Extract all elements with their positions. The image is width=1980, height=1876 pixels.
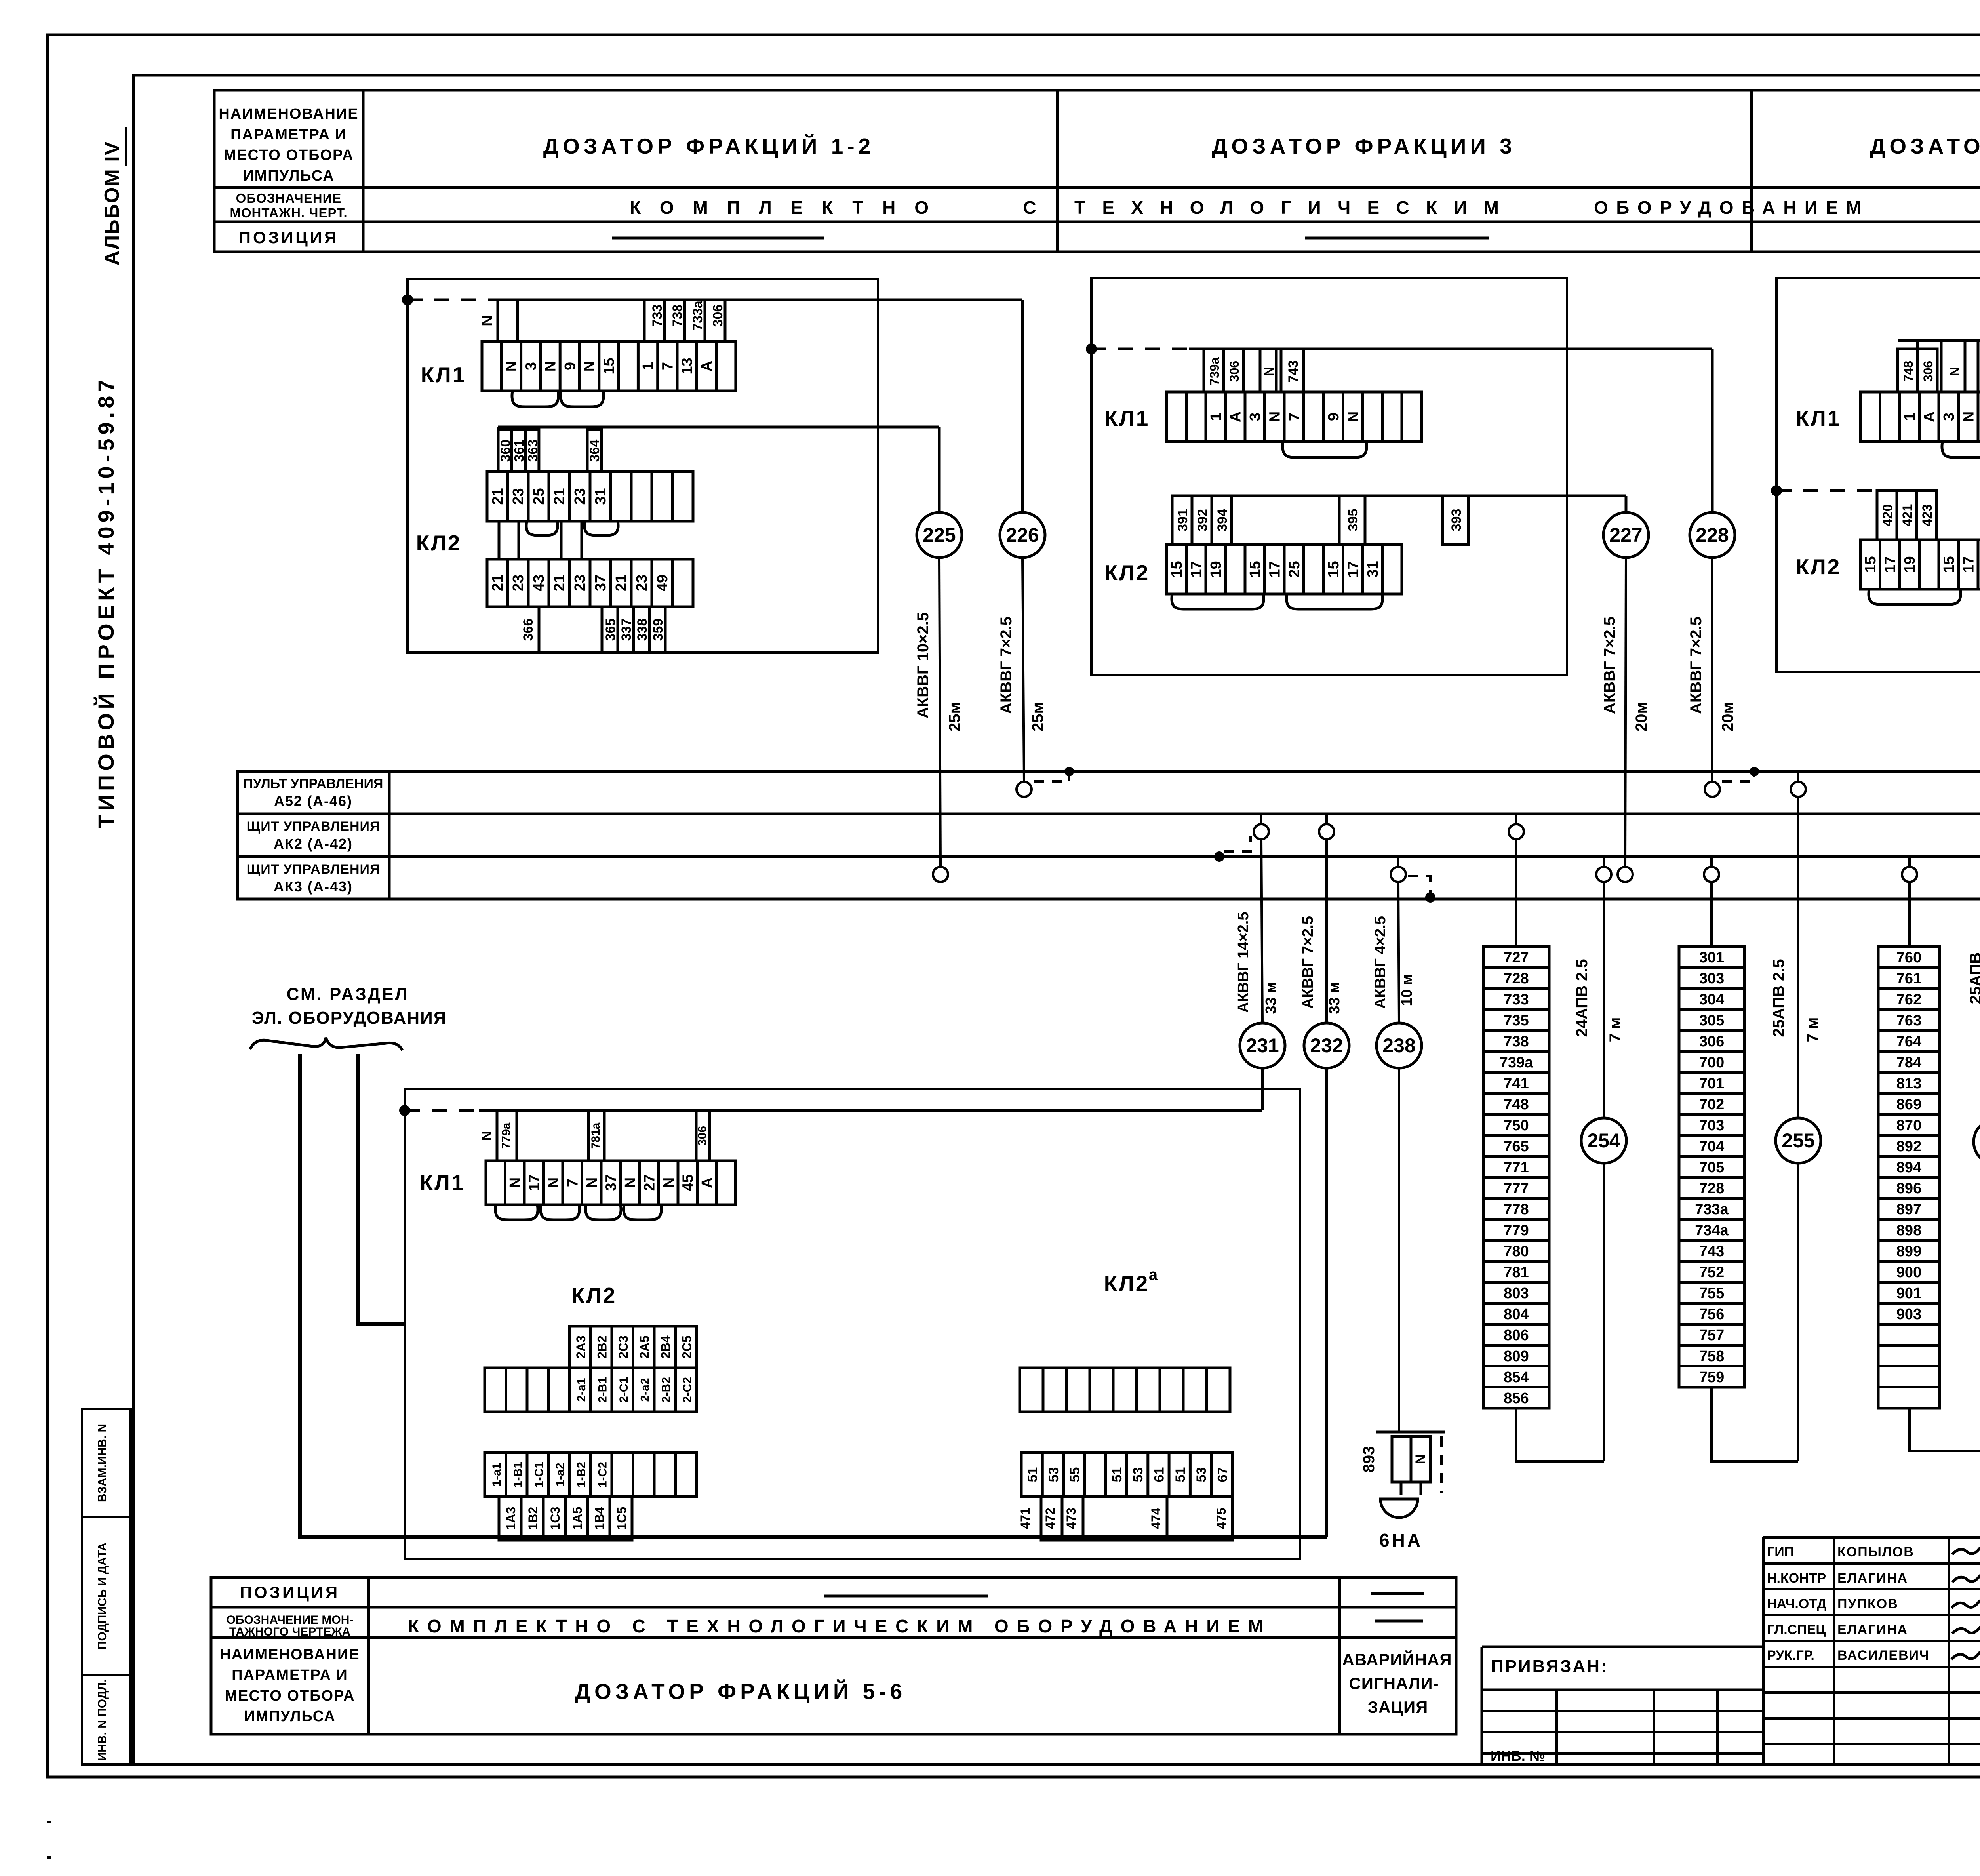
svg-text:727: 727 <box>1504 949 1529 966</box>
svg-text:ИНВ. N ПОДЛ.: ИНВ. N ПОДЛ. <box>96 1679 109 1761</box>
svg-text:306: 306 <box>710 305 725 327</box>
svg-text:ПРИВЯЗАН:: ПРИВЯЗАН: <box>1491 1657 1609 1676</box>
svg-text:893: 893 <box>1360 1446 1378 1473</box>
svg-text:15: 15 <box>601 358 617 374</box>
svg-text:15: 15 <box>1941 556 1957 573</box>
svg-text:ДОЗАТОР ФРАКЦИИ 3: ДОЗАТОР ФРАКЦИИ 3 <box>1212 134 1516 158</box>
svg-text:21: 21 <box>613 575 630 591</box>
svg-text:N: N <box>1948 367 1963 377</box>
svg-text:728: 728 <box>1504 970 1529 987</box>
svg-text:МОНТАЖН. ЧЕРТ.: МОНТАЖН. ЧЕРТ. <box>230 206 347 220</box>
svg-text:КЛ2: КЛ2 <box>571 1283 617 1308</box>
svg-text:N: N <box>545 1177 562 1188</box>
svg-text:392: 392 <box>1195 509 1210 531</box>
svg-text:771: 771 <box>1504 1159 1529 1176</box>
svg-text:23: 23 <box>510 488 527 505</box>
svg-text:2-В2: 2-В2 <box>660 1377 673 1403</box>
svg-text:ГЛ.СПЕЦ: ГЛ.СПЕЦ <box>1767 1622 1826 1637</box>
svg-text:20м: 20м <box>1633 702 1650 731</box>
svg-text:АКВВГ 10×2.5: АКВВГ 10×2.5 <box>914 612 932 718</box>
svg-text:ПОДПИСЬ И ДАТА: ПОДПИСЬ И ДАТА <box>96 1543 109 1649</box>
svg-text:1-С1: 1-С1 <box>533 1462 546 1487</box>
svg-text:С: С <box>1023 197 1036 218</box>
svg-text:51: 51 <box>1173 1467 1188 1482</box>
svg-text:53: 53 <box>1131 1467 1146 1482</box>
svg-text:23: 23 <box>572 488 588 505</box>
svg-text:15: 15 <box>1247 561 1264 577</box>
svg-text:779: 779 <box>1504 1222 1529 1239</box>
svg-text:2-В1: 2-В1 <box>596 1377 609 1403</box>
svg-text:СИГНАЛИ-: СИГНАЛИ- <box>1349 1674 1439 1693</box>
svg-text:781: 781 <box>1504 1264 1529 1281</box>
svg-text:813: 813 <box>1896 1075 1921 1092</box>
svg-text:17: 17 <box>1960 556 1977 573</box>
svg-text:23: 23 <box>510 575 527 591</box>
svg-text:2-а1: 2-а1 <box>575 1378 588 1402</box>
svg-text:701: 701 <box>1699 1075 1724 1092</box>
svg-text:N: N <box>503 361 520 371</box>
svg-text:КОПЫЛОВ: КОПЫЛОВ <box>1837 1545 1914 1560</box>
svg-text:Н.КОНТР: Н.КОНТР <box>1767 1571 1826 1586</box>
svg-text:733: 733 <box>650 305 665 327</box>
svg-text:АКВВГ 7×2.5: АКВВГ 7×2.5 <box>1601 617 1618 714</box>
svg-text:25АПВ 2.5: 25АПВ 2.5 <box>1770 959 1788 1037</box>
svg-text:21: 21 <box>489 488 506 505</box>
svg-text:1-В1: 1-В1 <box>511 1462 524 1487</box>
svg-text:НАИМЕНОВАНИЕ: НАИМЕНОВАНИЕ <box>220 1646 360 1663</box>
svg-text:2А3: 2А3 <box>574 1335 588 1359</box>
svg-text:24АПВ 2.5: 24АПВ 2.5 <box>1573 959 1591 1037</box>
svg-text:894: 894 <box>1896 1159 1921 1176</box>
svg-text:N: N <box>1266 411 1283 422</box>
svg-text:2-а2: 2-а2 <box>638 1378 651 1402</box>
svg-text:757: 757 <box>1699 1327 1724 1344</box>
svg-text:226: 226 <box>1006 524 1039 546</box>
svg-text:ЭЛ. ОБОРУДОВАНИЯ: ЭЛ. ОБОРУДОВАНИЯ <box>252 1008 447 1028</box>
svg-text:764: 764 <box>1896 1033 1921 1050</box>
svg-text:763: 763 <box>1896 1012 1921 1029</box>
svg-text:359: 359 <box>651 619 666 641</box>
svg-text:2С5: 2С5 <box>680 1335 694 1359</box>
svg-text:254: 254 <box>1587 1129 1620 1152</box>
svg-text:ПАРАМЕТРА И: ПАРАМЕТРА И <box>232 1667 348 1684</box>
svg-text:17: 17 <box>1266 561 1283 577</box>
svg-text:N: N <box>661 1177 677 1188</box>
svg-text:738: 738 <box>1504 1033 1529 1050</box>
svg-text:756: 756 <box>1699 1306 1724 1323</box>
svg-text:750: 750 <box>1504 1117 1529 1134</box>
svg-text:741: 741 <box>1504 1075 1529 1092</box>
svg-text:МЕСТО ОТБОРА: МЕСТО ОТБОРА <box>225 1687 355 1704</box>
svg-text:395: 395 <box>1346 509 1361 531</box>
svg-text:37: 37 <box>603 1174 619 1191</box>
svg-text:393: 393 <box>1449 509 1464 531</box>
svg-text:А: А <box>699 1177 716 1188</box>
svg-text:ТИПОВОЙ ПРОЕКТ 409-10-59.8: ТИПОВОЙ ПРОЕКТ 409-10-59.87 <box>93 376 118 828</box>
svg-text:475: 475 <box>1214 1508 1228 1529</box>
svg-text:13: 13 <box>679 358 696 374</box>
svg-text:7 м: 7 м <box>1804 1017 1821 1042</box>
svg-text:423: 423 <box>1920 504 1935 527</box>
svg-text:20м: 20м <box>1719 702 1736 731</box>
svg-text:АКВВГ 7×2.5: АКВВГ 7×2.5 <box>1300 916 1316 1009</box>
svg-text:761: 761 <box>1896 970 1921 987</box>
svg-text:КЛ1: КЛ1 <box>420 1170 465 1195</box>
svg-text:25: 25 <box>531 488 547 505</box>
svg-text:364: 364 <box>587 440 602 462</box>
svg-text:N: N <box>584 1177 600 1188</box>
svg-text:869: 869 <box>1896 1096 1921 1113</box>
svg-text:7: 7 <box>1286 413 1303 421</box>
svg-text:856: 856 <box>1504 1390 1529 1407</box>
svg-text:472: 472 <box>1043 1508 1057 1529</box>
svg-text:ПУПКОВ: ПУПКОВ <box>1837 1596 1898 1611</box>
svg-text:728: 728 <box>1699 1180 1724 1197</box>
svg-text:734а: 734а <box>1695 1222 1729 1239</box>
svg-text:61: 61 <box>1152 1467 1167 1482</box>
svg-text:752: 752 <box>1699 1264 1724 1281</box>
svg-text:899: 899 <box>1896 1243 1921 1260</box>
svg-text:231: 231 <box>1246 1034 1279 1057</box>
svg-text:ПУЛЬТ УПРАВЛЕНИЯ: ПУЛЬТ УПРАВЛЕНИЯ <box>244 776 383 791</box>
svg-text:21: 21 <box>551 488 568 505</box>
svg-text:43: 43 <box>531 575 547 591</box>
svg-text:702: 702 <box>1699 1096 1724 1113</box>
svg-text:2-С1: 2-С1 <box>617 1377 630 1403</box>
svg-text:473: 473 <box>1064 1508 1078 1529</box>
svg-text:1С5: 1С5 <box>615 1507 629 1530</box>
svg-text:А: А <box>1227 411 1244 422</box>
svg-text:ДОЗАТОР ФРАКЦИЙ 1-2: ДОЗАТОР ФРАКЦИЙ 1-2 <box>543 133 874 158</box>
svg-text:КЛ2: КЛ2 <box>1796 554 1841 579</box>
svg-text:АК3 (А-43): АК3 (А-43) <box>274 878 353 895</box>
svg-text:КЛ1: КЛ1 <box>421 362 466 387</box>
svg-text:306: 306 <box>1699 1033 1724 1050</box>
svg-text:ПАРАМЕТРА И: ПАРАМЕТРА И <box>230 126 347 143</box>
svg-text:N: N <box>1960 411 1977 422</box>
svg-text:25АПВ: 25АПВ <box>1967 952 1980 1004</box>
svg-text:809: 809 <box>1504 1348 1529 1365</box>
svg-text:735: 735 <box>1504 1012 1529 1029</box>
svg-text:ПОЗИЦИЯ: ПОЗИЦИЯ <box>239 228 339 247</box>
svg-text:17: 17 <box>1882 556 1898 573</box>
svg-text:17: 17 <box>1188 561 1205 577</box>
svg-text:53: 53 <box>1194 1467 1209 1482</box>
svg-text:ГИП: ГИП <box>1767 1545 1794 1560</box>
svg-text:а: а <box>1149 1266 1158 1284</box>
svg-text:АК2 (А-42): АК2 (А-42) <box>274 836 353 852</box>
svg-text:870: 870 <box>1896 1117 1921 1134</box>
svg-text:777: 777 <box>1504 1180 1529 1197</box>
svg-text:ЩИТ УПРАВЛЕНИЯ: ЩИТ УПРАВЛЕНИЯ <box>247 862 380 877</box>
svg-text:759: 759 <box>1699 1369 1724 1386</box>
svg-text:225: 225 <box>923 524 956 546</box>
svg-text:АКВВГ 7×2.5: АКВВГ 7×2.5 <box>1687 617 1705 714</box>
svg-text:ИМПУЛЬСА: ИМПУЛЬСА <box>243 168 334 184</box>
svg-text:15: 15 <box>1862 556 1879 573</box>
svg-text:304: 304 <box>1699 991 1724 1008</box>
svg-text:19: 19 <box>1902 556 1918 573</box>
svg-text:803: 803 <box>1504 1285 1529 1302</box>
svg-text:3: 3 <box>1941 413 1957 421</box>
svg-text:738: 738 <box>670 305 685 327</box>
svg-text:КЛ1: КЛ1 <box>1104 406 1150 430</box>
svg-text:ОБОЗНАЧЕНИЕ: ОБОЗНАЧЕНИЕ <box>236 191 342 206</box>
svg-text:ЩИТ УПРАВЛЕНИЯ: ЩИТ УПРАВЛЕНИЯ <box>247 819 380 834</box>
svg-text:361: 361 <box>512 440 527 462</box>
svg-text:17: 17 <box>1345 561 1361 577</box>
svg-text:А52 (А-46): А52 (А-46) <box>274 793 352 809</box>
svg-text:474: 474 <box>1149 1508 1163 1529</box>
svg-text:31: 31 <box>1365 561 1381 577</box>
svg-text:1С3: 1С3 <box>548 1507 562 1530</box>
svg-text:748: 748 <box>1504 1096 1529 1113</box>
svg-text:15: 15 <box>1169 561 1185 577</box>
svg-text:N: N <box>1345 411 1361 422</box>
svg-text:55: 55 <box>1067 1467 1082 1482</box>
svg-text:ВАСИЛЕВИЧ: ВАСИЛЕВИЧ <box>1837 1648 1930 1663</box>
svg-text:227: 227 <box>1609 524 1642 546</box>
svg-text:704: 704 <box>1699 1138 1724 1155</box>
svg-text:338: 338 <box>635 619 650 641</box>
svg-text:1В2: 1В2 <box>526 1507 540 1530</box>
svg-text:N: N <box>479 315 496 326</box>
svg-text:ДОЗАТОР ФРАКЦИЙ 5-6: ДОЗАТОР ФРАКЦИЙ 5-6 <box>575 1679 906 1704</box>
svg-text:365: 365 <box>603 619 618 641</box>
svg-text:1-В2: 1-В2 <box>575 1462 588 1487</box>
svg-text:781а: 781а <box>589 1122 602 1149</box>
svg-text:РУК.ГР.: РУК.ГР. <box>1767 1648 1814 1663</box>
svg-text:892: 892 <box>1896 1138 1921 1155</box>
svg-text:N: N <box>507 1177 524 1188</box>
svg-text:806: 806 <box>1504 1327 1529 1344</box>
svg-text:733а: 733а <box>690 300 705 331</box>
svg-text:ИНВ. №: ИНВ. № <box>1491 1748 1545 1764</box>
svg-text:КЛ1: КЛ1 <box>1796 406 1841 430</box>
svg-text:ПОЗИЦИЯ: ПОЗИЦИЯ <box>240 1583 340 1602</box>
svg-text:25м: 25м <box>1029 702 1047 731</box>
svg-text:АКВВГ 14×2.5: АКВВГ 14×2.5 <box>1235 912 1252 1013</box>
svg-text:3: 3 <box>1247 413 1264 421</box>
svg-text:733: 733 <box>1504 991 1529 1008</box>
svg-text:765: 765 <box>1504 1138 1529 1155</box>
svg-text:33 м: 33 м <box>1326 982 1343 1014</box>
svg-text:ЕЛАГИНА: ЕЛАГИНА <box>1837 1571 1908 1586</box>
svg-text:1-С2: 1-С2 <box>596 1462 609 1487</box>
svg-text:67: 67 <box>1215 1467 1230 1482</box>
svg-text:760: 760 <box>1896 949 1921 966</box>
svg-text:53: 53 <box>1046 1467 1061 1482</box>
svg-text:23: 23 <box>634 575 650 591</box>
svg-text:2А5: 2А5 <box>637 1335 651 1359</box>
svg-text:15: 15 <box>1325 561 1342 577</box>
svg-text:471: 471 <box>1018 1508 1032 1529</box>
svg-text:758: 758 <box>1699 1348 1724 1365</box>
svg-text:700: 700 <box>1699 1054 1724 1071</box>
svg-text:391: 391 <box>1175 509 1190 531</box>
svg-text:2С3: 2С3 <box>616 1335 630 1359</box>
svg-text:337: 337 <box>619 619 634 641</box>
svg-text:232: 232 <box>1310 1034 1343 1057</box>
svg-text:1: 1 <box>1902 413 1918 421</box>
svg-text:2В4: 2В4 <box>659 1335 673 1359</box>
svg-text:НАЧ.ОТД: НАЧ.ОТД <box>1767 1596 1826 1611</box>
svg-text:748: 748 <box>1901 361 1915 382</box>
svg-text:1А3: 1А3 <box>504 1507 518 1530</box>
svg-text:705: 705 <box>1699 1159 1724 1176</box>
svg-text:306: 306 <box>1227 361 1241 382</box>
svg-text:АКВВГ 7×2.5: АКВВГ 7×2.5 <box>998 617 1015 714</box>
svg-text:255: 255 <box>1782 1129 1814 1152</box>
svg-text:АКВВГ 4×2.5: АКВВГ 4×2.5 <box>1372 916 1389 1009</box>
svg-text:9: 9 <box>1325 413 1342 421</box>
svg-text:903: 903 <box>1896 1306 1921 1323</box>
svg-text:27: 27 <box>641 1174 658 1191</box>
svg-text:778: 778 <box>1504 1201 1529 1218</box>
svg-text:1А5: 1А5 <box>570 1507 584 1530</box>
svg-text:ТЕХНОЛОГИЧЕСКИМ: ТЕХНОЛОГИЧЕСКИМ <box>1074 197 1499 218</box>
svg-text:31: 31 <box>592 488 609 505</box>
svg-text:25: 25 <box>1286 561 1303 577</box>
svg-text:ЕЛАГИНА: ЕЛАГИНА <box>1837 1622 1908 1637</box>
svg-text:НАИМЕНОВАНИЕ: НАИМЕНОВАНИЕ <box>219 106 358 122</box>
svg-text:363: 363 <box>525 440 541 462</box>
svg-text:23: 23 <box>572 575 588 591</box>
svg-text:6НА: 6НА <box>1379 1530 1423 1550</box>
svg-text:N: N <box>479 1131 494 1141</box>
svg-text:306: 306 <box>696 1126 709 1146</box>
svg-text:739а: 739а <box>1500 1054 1533 1071</box>
svg-text:1-а1: 1-а1 <box>490 1463 503 1486</box>
svg-text:17: 17 <box>526 1174 543 1191</box>
svg-text:366: 366 <box>521 619 536 641</box>
svg-text:303: 303 <box>1699 970 1724 987</box>
svg-text:897: 897 <box>1896 1201 1921 1218</box>
svg-text:33 м: 33 м <box>1263 982 1279 1014</box>
svg-text:804: 804 <box>1504 1306 1529 1323</box>
svg-text:901: 901 <box>1896 1285 1921 1302</box>
svg-text:228: 228 <box>1696 524 1729 546</box>
svg-text:19: 19 <box>1208 561 1224 577</box>
svg-text:306: 306 <box>1921 361 1935 382</box>
svg-text:КЛ2: КЛ2 <box>416 531 462 555</box>
svg-text:755: 755 <box>1699 1285 1724 1302</box>
svg-text:2-С2: 2-С2 <box>681 1377 694 1403</box>
svg-text:1-а2: 1-а2 <box>554 1463 567 1486</box>
svg-text:762: 762 <box>1896 991 1921 1008</box>
svg-text:2В2: 2В2 <box>595 1335 609 1359</box>
svg-text:КЛ2: КЛ2 <box>1104 1271 1150 1296</box>
svg-text:900: 900 <box>1896 1264 1921 1281</box>
svg-text:9: 9 <box>562 362 579 370</box>
svg-text:896: 896 <box>1896 1180 1921 1197</box>
svg-text:743: 743 <box>1286 360 1301 383</box>
svg-text:N: N <box>1413 1455 1428 1465</box>
svg-text:ЗАЦИЯ: ЗАЦИЯ <box>1368 1698 1428 1716</box>
svg-text:А: А <box>699 361 715 371</box>
svg-text:743: 743 <box>1699 1243 1724 1260</box>
svg-text:7 м: 7 м <box>1607 1017 1624 1042</box>
svg-text:779а: 779а <box>500 1122 513 1149</box>
svg-text:739а: 739а <box>1207 357 1222 385</box>
svg-text:N: N <box>1262 367 1277 377</box>
svg-text:АЛЬБОМ IV: АЛЬБОМ IV <box>101 141 124 266</box>
svg-text:780: 780 <box>1504 1243 1529 1260</box>
svg-text:ТАЖНОГО ЧЕРТЕЖА: ТАЖНОГО ЧЕРТЕЖА <box>229 1625 350 1638</box>
svg-text:733а: 733а <box>1695 1201 1729 1218</box>
svg-text:784: 784 <box>1896 1054 1921 1071</box>
svg-text:10 м: 10 м <box>1399 974 1415 1006</box>
svg-text:238: 238 <box>1382 1034 1415 1057</box>
svg-text:420: 420 <box>1880 504 1895 527</box>
svg-text:1: 1 <box>640 362 657 370</box>
svg-text:360: 360 <box>498 440 513 462</box>
svg-text:N: N <box>622 1177 639 1188</box>
svg-text:703: 703 <box>1699 1117 1724 1134</box>
svg-text:301: 301 <box>1699 949 1724 966</box>
svg-text:СМ. РАЗДЕЛ: СМ. РАЗДЕЛ <box>287 985 409 1004</box>
svg-text:7: 7 <box>564 1179 581 1187</box>
svg-text:51: 51 <box>1025 1467 1040 1482</box>
svg-text:51: 51 <box>1110 1467 1125 1482</box>
svg-text:37: 37 <box>592 575 609 591</box>
svg-text:7: 7 <box>659 362 676 370</box>
svg-text:ИМПУЛЬСА: ИМПУЛЬСА <box>244 1708 335 1725</box>
svg-text:854: 854 <box>1504 1369 1529 1386</box>
svg-text:ДОЗАТОР ФРАКЦИИ 4: ДОЗАТОР ФРАКЦИИ 4 <box>1870 134 1980 158</box>
svg-text:898: 898 <box>1896 1222 1921 1239</box>
svg-text:21: 21 <box>551 575 568 591</box>
svg-text:ОБОЗНАЧЕНИЕ МОН-: ОБОЗНАЧЕНИЕ МОН- <box>227 1613 354 1627</box>
svg-text:А: А <box>1921 411 1938 422</box>
svg-text:N: N <box>581 361 598 371</box>
svg-text:N: N <box>543 361 559 371</box>
svg-text:45: 45 <box>680 1174 696 1191</box>
svg-text:394: 394 <box>1215 509 1230 531</box>
svg-text:АВАРИЙНАЯ: АВАРИЙНАЯ <box>1342 1650 1452 1669</box>
svg-text:КЛ2: КЛ2 <box>1104 560 1150 585</box>
svg-text:421: 421 <box>1900 504 1915 527</box>
svg-text:21: 21 <box>489 575 506 591</box>
svg-text:25м: 25м <box>946 702 963 731</box>
svg-text:305: 305 <box>1699 1012 1724 1029</box>
svg-text:1: 1 <box>1208 413 1224 421</box>
svg-text:3: 3 <box>523 362 539 370</box>
svg-text:МЕСТО ОТБОРА: МЕСТО ОТБОРА <box>224 147 354 164</box>
svg-text:ВЗАМ.ИНВ. N: ВЗАМ.ИНВ. N <box>96 1424 109 1502</box>
svg-text:49: 49 <box>654 575 671 591</box>
svg-text:1В4: 1В4 <box>592 1507 607 1530</box>
